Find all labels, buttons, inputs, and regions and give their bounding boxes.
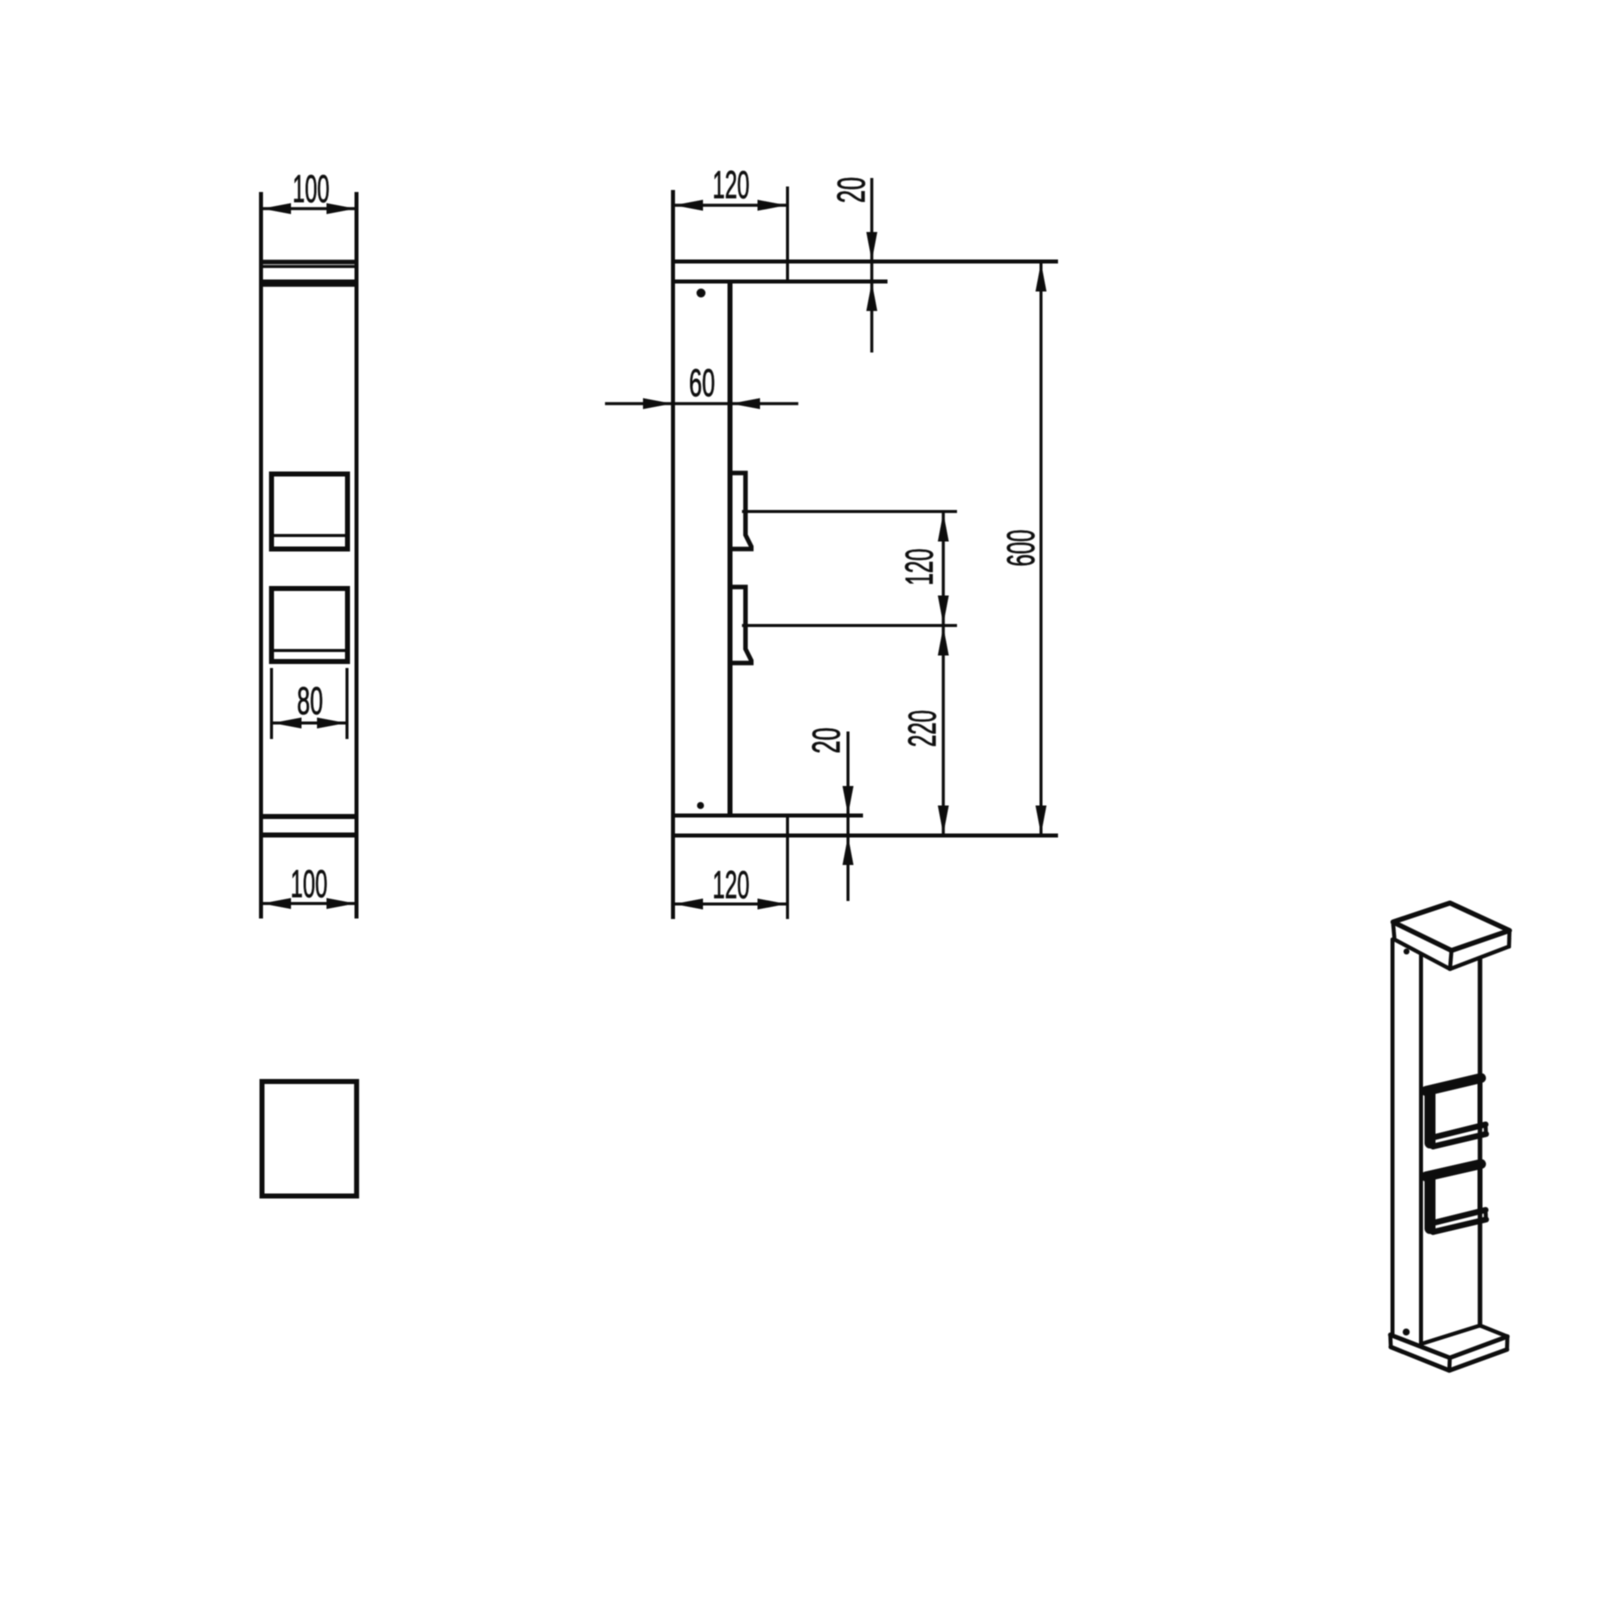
svg-text:20: 20 — [806, 728, 849, 754]
svg-text:80: 80 — [297, 680, 323, 723]
svg-text:20: 20 — [831, 177, 874, 203]
svg-text:60: 60 — [689, 362, 715, 405]
svg-text:120: 120 — [713, 164, 750, 207]
svg-text:100: 100 — [291, 863, 328, 906]
svg-text:100: 100 — [293, 168, 330, 211]
svg-text:120: 120 — [898, 549, 941, 586]
svg-text:220: 220 — [902, 710, 945, 747]
svg-text:120: 120 — [713, 864, 750, 907]
svg-text:600: 600 — [1000, 530, 1043, 567]
